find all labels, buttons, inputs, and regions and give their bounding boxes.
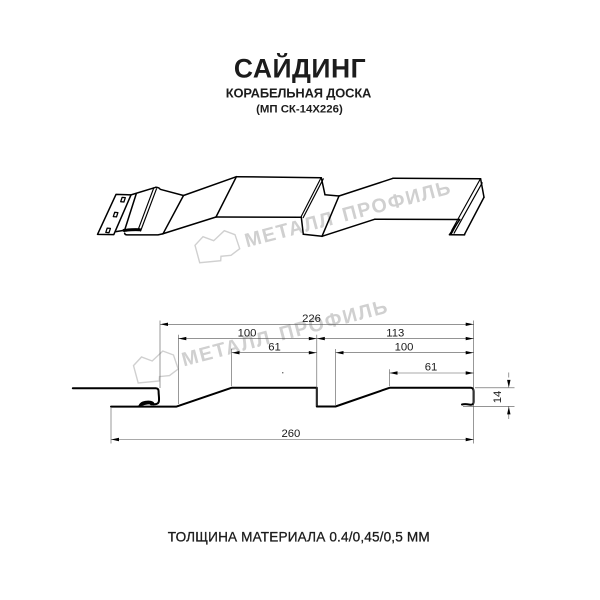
svg-text:(МП СК-14Х226): (МП СК-14Х226) [256,104,343,116]
svg-text:14: 14 [492,391,504,404]
svg-text:КОРАБЕЛЬНАЯ ДОСКА: КОРАБЕЛЬНАЯ ДОСКА [226,86,371,101]
svg-text:113: 113 [386,327,404,339]
svg-text:61: 61 [425,362,438,374]
svg-text:61: 61 [268,341,281,353]
svg-text:ТОЛЩИНА МАТЕРИАЛА 0.4/0,45/0,5: ТОЛЩИНА МАТЕРИАЛА 0.4/0,45/0,5 ММ [168,530,430,545]
svg-text:260: 260 [281,428,300,440]
svg-text:САЙДИНГ: САЙДИНГ [234,54,366,84]
svg-text:100: 100 [238,327,257,339]
svg-text:226: 226 [302,313,321,325]
svg-text:100: 100 [395,341,414,353]
